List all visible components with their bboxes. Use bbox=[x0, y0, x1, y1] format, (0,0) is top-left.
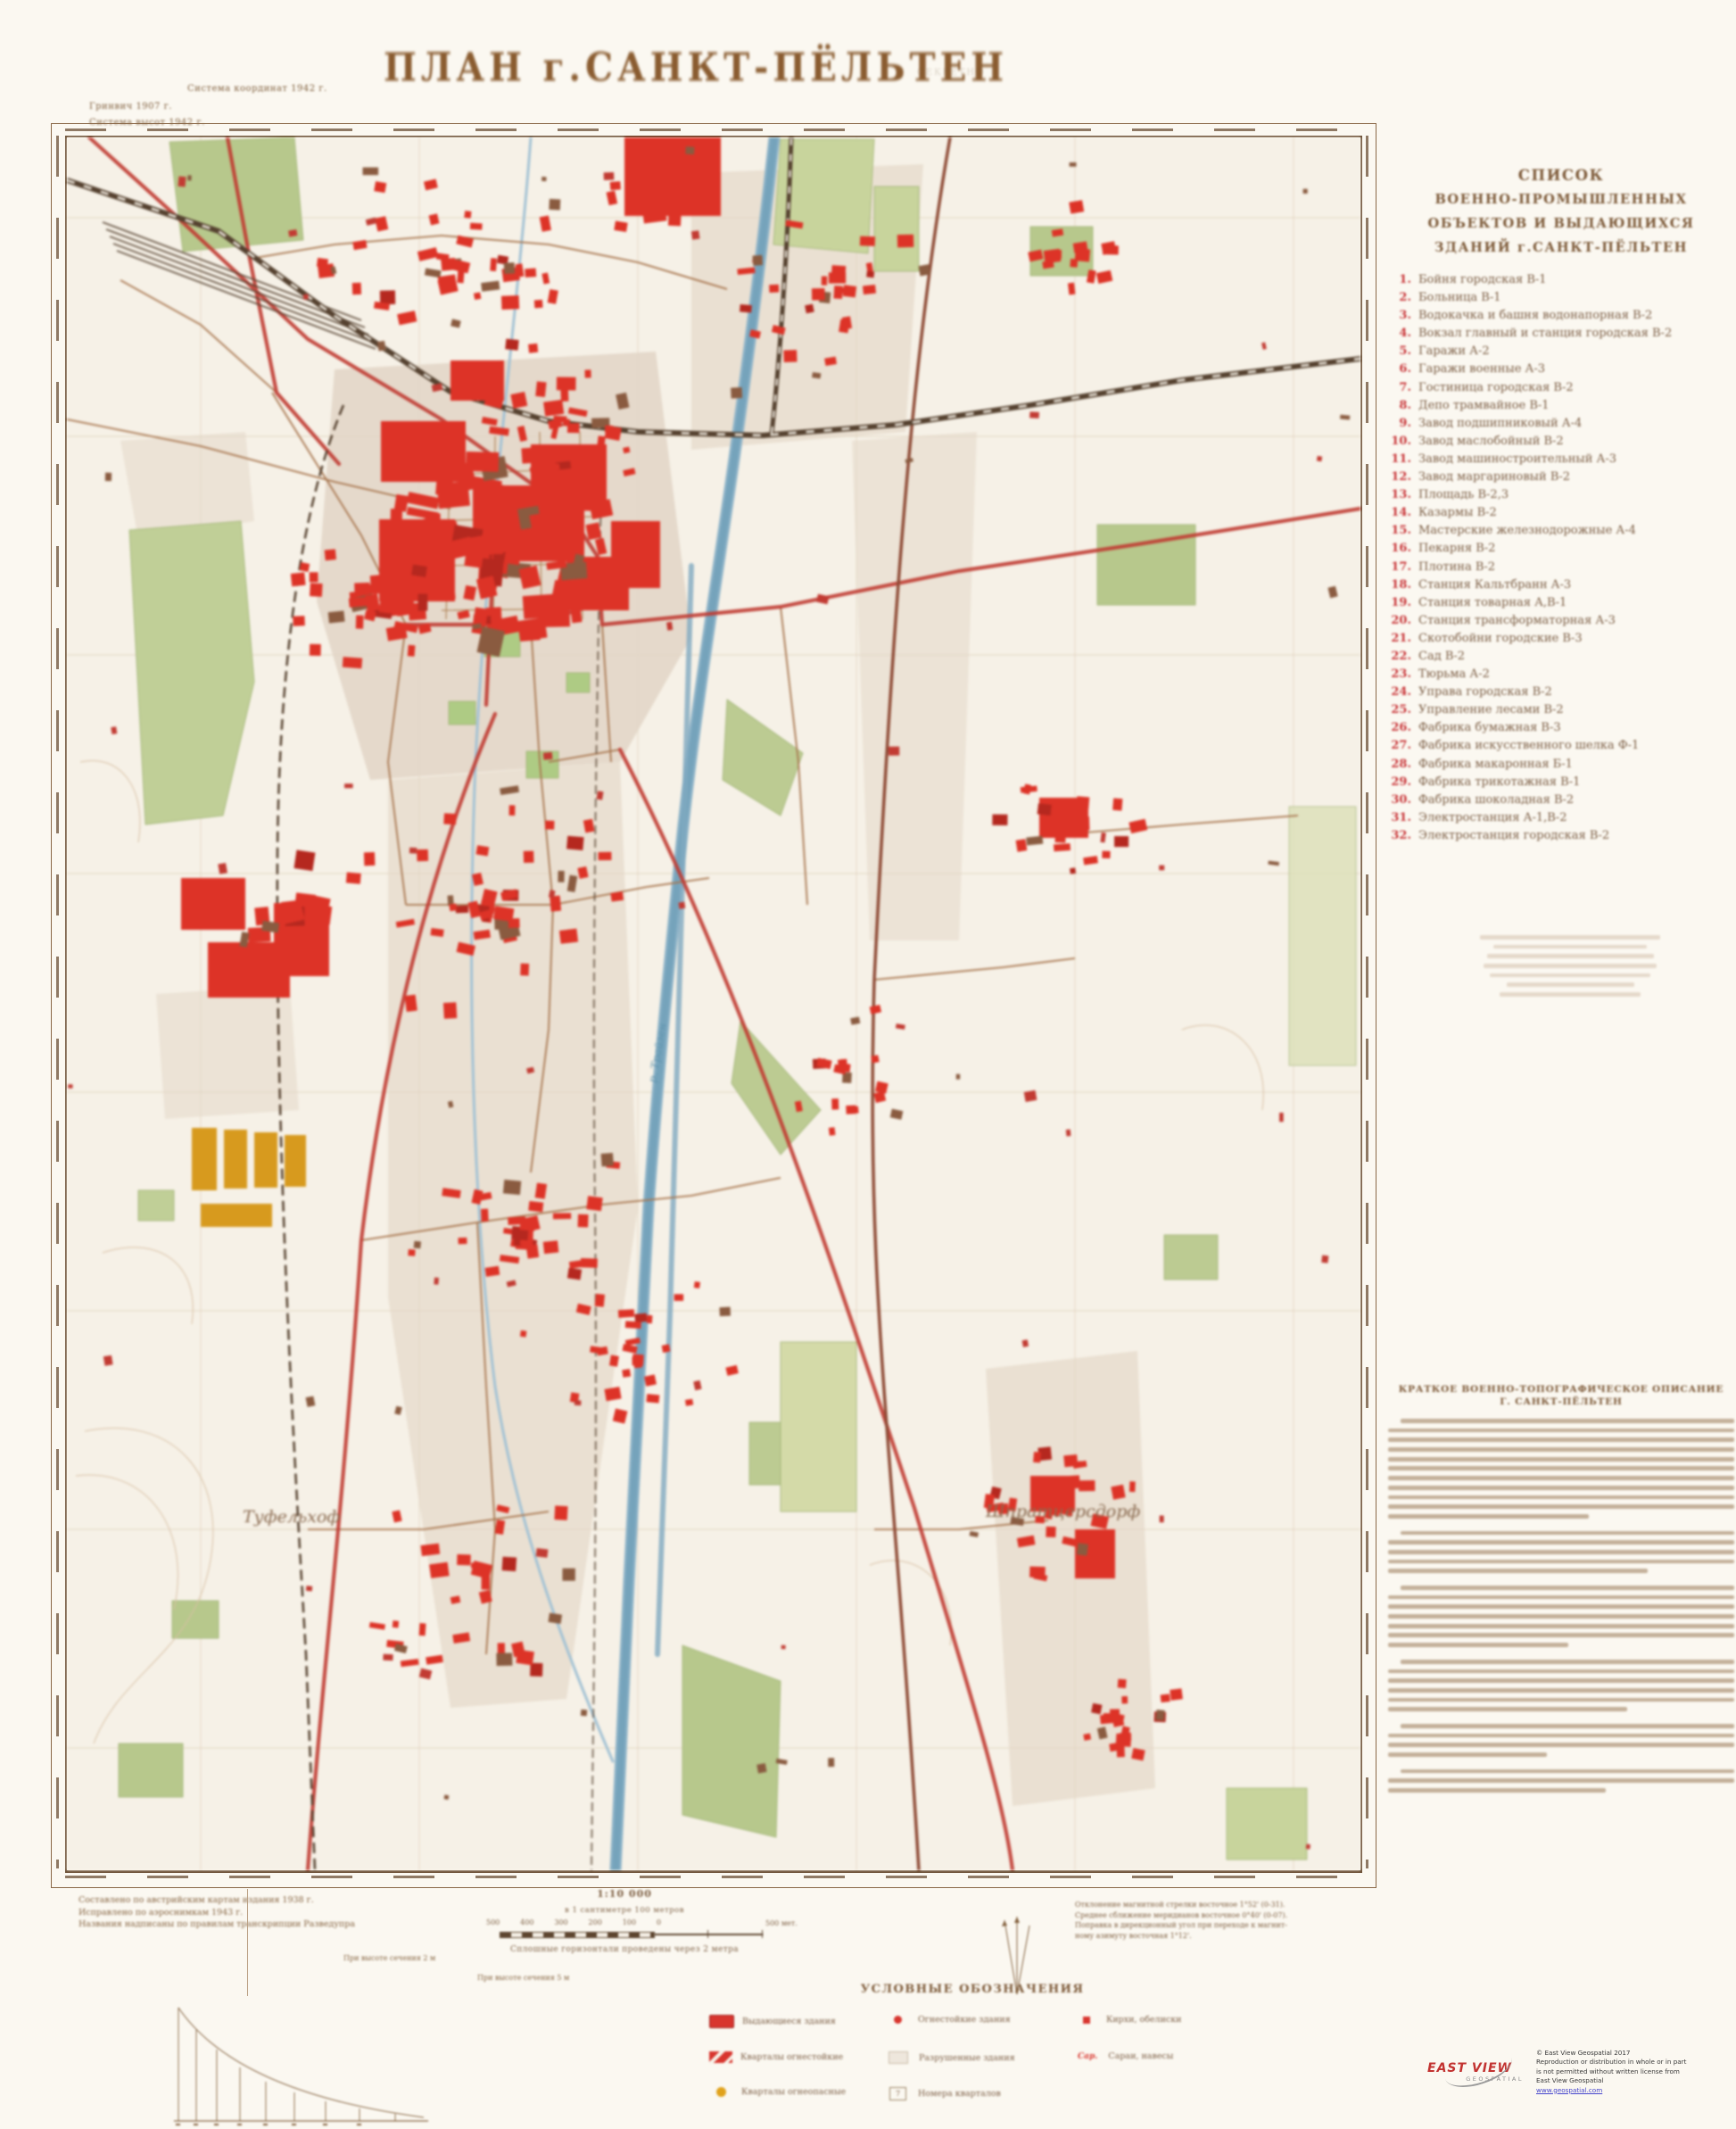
building-block bbox=[536, 1548, 549, 1558]
building-block bbox=[490, 258, 497, 271]
eastview-line: is not permitted without written license… bbox=[1536, 2067, 1686, 2076]
building-block bbox=[604, 172, 615, 180]
list-item-text: Бойня городская В-1 bbox=[1418, 271, 1547, 289]
building-block bbox=[812, 288, 825, 301]
source-note-line: Названия надписаны по правилам транскрип… bbox=[79, 1918, 355, 1931]
building-block bbox=[599, 852, 612, 860]
place-label: Туфельхоф bbox=[243, 1507, 340, 1527]
list-item-number: 23. bbox=[1388, 666, 1418, 683]
building-block bbox=[475, 845, 489, 856]
red-block-legend-icon bbox=[709, 2015, 734, 2028]
building-block bbox=[521, 447, 541, 464]
slope-scale-diagram bbox=[165, 1994, 433, 2128]
objects-list: СПИСОК ВОЕННО-ПРОМЫШЛЕННЫХ ОБЪЕКТОВ И ВЫ… bbox=[1388, 163, 1734, 845]
faint-text-line bbox=[1490, 973, 1650, 978]
building-block bbox=[541, 177, 547, 181]
scale-bar-numbers: 5004003002001000 bbox=[486, 1918, 661, 1926]
list-item: 29.Фабрика трикотажная В-1 bbox=[1388, 774, 1734, 791]
red-dot-legend-icon bbox=[894, 2016, 902, 2024]
list-item: 17.Плотина В-2 bbox=[1388, 559, 1734, 576]
list-item-number: 30. bbox=[1388, 791, 1418, 809]
building-block bbox=[566, 836, 584, 850]
list-item-text: Завод машиностроительный А-3 bbox=[1418, 451, 1616, 468]
building-block bbox=[889, 747, 899, 756]
building-block bbox=[352, 283, 361, 294]
building-block bbox=[504, 546, 522, 565]
building-block bbox=[563, 418, 571, 427]
description-text-line bbox=[1401, 1586, 1734, 1590]
building-block bbox=[1024, 1090, 1037, 1102]
building-block bbox=[409, 848, 417, 854]
building-block bbox=[419, 1623, 426, 1636]
list-item-number: 20. bbox=[1388, 612, 1418, 630]
building-block bbox=[822, 277, 828, 286]
list-item-number: 15. bbox=[1388, 522, 1418, 540]
building-block bbox=[549, 199, 560, 211]
building-block bbox=[310, 644, 321, 656]
building-block bbox=[1037, 803, 1052, 816]
list-item-number: 14. bbox=[1388, 504, 1418, 522]
legend-item: Кварталы огнеопасные bbox=[709, 2087, 846, 2097]
faint-text-line bbox=[1487, 954, 1654, 958]
legend-item: Сар.Сараи, навесы bbox=[1075, 2051, 1173, 2061]
building-block bbox=[641, 203, 666, 224]
frame-projection-line bbox=[247, 1889, 248, 1996]
building-block bbox=[528, 1201, 543, 1212]
scale-in-cm: в 1 сантиметре 100 метров bbox=[384, 1906, 865, 1915]
building-block bbox=[550, 896, 561, 912]
slope-note-b: При высоте сечения 5 м bbox=[477, 1974, 569, 1982]
list-heading-line: ЗДАНИЙ г.САНКТ-ПЁЛЬТЕН bbox=[1388, 236, 1734, 260]
description-text-line bbox=[1388, 1466, 1734, 1470]
list-item-text: Завод подшипниковый А-4 bbox=[1418, 415, 1582, 433]
building-block bbox=[1102, 851, 1110, 858]
legend-label: Огнестойкие здания bbox=[918, 2015, 1011, 2025]
legend-label: Кварталы огнестойкие bbox=[740, 2052, 843, 2062]
building-block bbox=[731, 387, 742, 399]
list-item-number: 28. bbox=[1388, 756, 1418, 774]
building-block bbox=[559, 929, 578, 944]
description-text-line bbox=[1388, 1457, 1734, 1462]
building-block bbox=[674, 1294, 683, 1301]
legend-label: Номера кварталов bbox=[918, 2089, 1001, 2099]
building-block bbox=[535, 1183, 547, 1199]
building-block bbox=[394, 494, 409, 512]
building-block bbox=[464, 211, 471, 219]
building-block bbox=[504, 262, 515, 274]
building-block bbox=[317, 258, 328, 268]
description-heading-line: КРАТКОЕ ВОЕННО-ТОПОГРАФИЧЕСКОЕ ОПИСАНИЕ bbox=[1388, 1383, 1734, 1396]
list-item-text: Завод маслобойный В-2 bbox=[1418, 433, 1564, 451]
building-block bbox=[310, 572, 318, 582]
list-item: 19.Станция товарная А,В-1 bbox=[1388, 594, 1734, 612]
list-item-number: 17. bbox=[1388, 559, 1418, 576]
building-block bbox=[1016, 839, 1028, 851]
building-block bbox=[543, 400, 564, 417]
building-block bbox=[548, 1612, 562, 1623]
legend-label: Выдающиеся здания bbox=[742, 2017, 836, 2026]
list-item-number: 2. bbox=[1388, 289, 1418, 307]
list-item-text: Плотина В-2 bbox=[1418, 559, 1495, 576]
list-item-text: Электростанция городская В-2 bbox=[1418, 827, 1609, 845]
list-item-number: 26. bbox=[1388, 719, 1418, 737]
building-block bbox=[1321, 1255, 1328, 1263]
building-block bbox=[1069, 200, 1084, 213]
list-item-text: Вокзал главный и станция городская В-2 bbox=[1418, 325, 1672, 343]
description-text-line bbox=[1388, 1476, 1734, 1480]
building-block bbox=[268, 949, 285, 957]
red-square-legend-icon bbox=[1083, 2017, 1090, 2024]
legend-label: Сараи, навесы bbox=[1108, 2051, 1173, 2061]
building-block bbox=[525, 268, 536, 277]
list-item: 24.Управа городская В-2 bbox=[1388, 683, 1734, 701]
building-block bbox=[1279, 1113, 1284, 1122]
frame-ticks-left bbox=[56, 136, 59, 1868]
faint-text-line bbox=[1493, 945, 1647, 949]
list-item-number: 22. bbox=[1388, 648, 1418, 666]
source-notes: Составлено по австрийским картам издания… bbox=[79, 1894, 355, 1931]
list-item-number: 32. bbox=[1388, 827, 1418, 845]
scale-number: 400 bbox=[520, 1918, 533, 1926]
scale-bar-line bbox=[654, 1934, 763, 1935]
building-block bbox=[584, 369, 591, 377]
building-block bbox=[496, 1653, 512, 1666]
eastview-line: Reproduction or distribution in whole or… bbox=[1536, 2058, 1686, 2067]
scale-ratio: 1:10 000 bbox=[384, 1888, 865, 1900]
description-text-line bbox=[1388, 1614, 1734, 1619]
building-block bbox=[1077, 1543, 1088, 1555]
description-text-line bbox=[1388, 1788, 1606, 1793]
list-item: 13.Площадь В-2,3 bbox=[1388, 486, 1734, 504]
description-text-line bbox=[1388, 1643, 1568, 1647]
building-block bbox=[449, 903, 457, 911]
list-item-number: 6. bbox=[1388, 360, 1418, 378]
building-block bbox=[370, 575, 381, 584]
faint-text-line bbox=[1480, 935, 1660, 940]
list-item: 12.Завод маргариновый В-2 bbox=[1388, 468, 1734, 486]
eastview-line: © East View Geospatial 2017 bbox=[1536, 2049, 1686, 2058]
description-text-line bbox=[1388, 1707, 1627, 1711]
building-block bbox=[501, 295, 519, 310]
list-item: 18.Станция Кальтбранн А-3 bbox=[1388, 576, 1734, 594]
building-block bbox=[1104, 1545, 1111, 1553]
building-block bbox=[1041, 817, 1054, 831]
building-block bbox=[457, 1554, 471, 1565]
list-item-number: 7. bbox=[1388, 379, 1418, 397]
list-item: 32.Электростанция городская В-2 bbox=[1388, 827, 1734, 845]
list-item: 3.Водокачка и башня водонапорная В-2 bbox=[1388, 307, 1734, 325]
building-block bbox=[992, 815, 1007, 825]
building-block bbox=[1340, 415, 1350, 420]
building-block bbox=[578, 1214, 589, 1228]
building-block bbox=[694, 1281, 700, 1288]
list-item-text: Сад В-2 bbox=[1418, 648, 1465, 666]
building-block bbox=[1062, 1475, 1079, 1489]
building-block bbox=[1054, 843, 1071, 851]
building-block bbox=[1111, 1485, 1125, 1500]
list-item-text: Фабрика макаронная Б-1 bbox=[1418, 756, 1573, 774]
building-block bbox=[719, 1307, 731, 1316]
building-block bbox=[1033, 1452, 1041, 1462]
building-block bbox=[434, 1278, 439, 1285]
building-block bbox=[897, 235, 914, 248]
list-item-text: Фабрика шоколадная В-2 bbox=[1418, 791, 1574, 809]
list-item-number: 16. bbox=[1388, 540, 1418, 558]
description-text-line bbox=[1388, 1514, 1589, 1519]
building-block bbox=[783, 350, 797, 362]
list-item-text: Больница В-1 bbox=[1418, 289, 1501, 307]
building-block bbox=[408, 645, 416, 657]
building-block bbox=[781, 1645, 786, 1650]
building-block bbox=[1155, 1710, 1164, 1720]
building-block bbox=[411, 565, 427, 577]
building-block bbox=[567, 1268, 582, 1280]
building-block bbox=[685, 146, 694, 154]
list-item: 8.Депо трамвайное В-1 bbox=[1388, 397, 1734, 415]
list-item-text: Казармы В-2 bbox=[1418, 504, 1497, 522]
paragraph-gap bbox=[1388, 1524, 1734, 1531]
list-item: 16.Пекарня В-2 bbox=[1388, 540, 1734, 558]
building-block bbox=[1161, 1694, 1170, 1702]
building-block bbox=[625, 1321, 641, 1329]
building-block bbox=[756, 1763, 766, 1774]
list-item-text: Управление лесами В-2 bbox=[1418, 701, 1564, 719]
eastview-text: © East View Geospatial 2017 Reproduction… bbox=[1536, 2049, 1686, 2095]
list-item: 11.Завод машиностроительный А-3 bbox=[1388, 451, 1734, 468]
description-text-line bbox=[1388, 1698, 1734, 1702]
building-block bbox=[691, 230, 700, 239]
building-block bbox=[1046, 1527, 1055, 1537]
building-block bbox=[519, 1220, 535, 1230]
building-block bbox=[325, 549, 336, 560]
description-text-line bbox=[1388, 1569, 1648, 1573]
legend-item: Кирхи, обелиски bbox=[1075, 2015, 1182, 2025]
building-block bbox=[829, 272, 846, 283]
list-item: 22.Сад В-2 bbox=[1388, 648, 1734, 666]
description-heading: КРАТКОЕ ВОЕННО-ТОПОГРАФИЧЕСКОЕ ОПИСАНИЕ … bbox=[1388, 1383, 1734, 1408]
abbr-legend-icon: Сар. bbox=[1078, 2052, 1097, 2061]
scale-end-label: 500 мет. bbox=[765, 1919, 798, 1927]
list-item: 5.Гаражи А-2 bbox=[1388, 343, 1734, 360]
faint-text-line bbox=[1484, 964, 1657, 968]
building-block bbox=[1112, 798, 1122, 810]
eastview-stamp: EAST VIEW GEOSPATIAL © East View Geospat… bbox=[1427, 2049, 1731, 2095]
building-block bbox=[364, 852, 376, 866]
frame-ticks-top bbox=[65, 128, 1359, 131]
frame-ticks-bottom bbox=[65, 1876, 1359, 1878]
building-block bbox=[1129, 1481, 1136, 1492]
faint-imprint-block bbox=[1472, 935, 1668, 1002]
building-block bbox=[464, 543, 484, 567]
description-text-line bbox=[1388, 1550, 1734, 1554]
description-block: КРАТКОЕ ВОЕННО-ТОПОГРАФИЧЕСКОЕ ОПИСАНИЕ … bbox=[1388, 1383, 1734, 1805]
building-block bbox=[833, 286, 842, 299]
eastview-logo: EAST VIEW GEOSPATIAL bbox=[1427, 2049, 1524, 2083]
scale-number: 100 bbox=[623, 1918, 636, 1926]
list-item-number: 11. bbox=[1388, 451, 1418, 468]
building-block bbox=[614, 221, 627, 233]
building-block bbox=[1056, 816, 1067, 827]
building-block bbox=[557, 377, 576, 390]
building-block bbox=[1073, 241, 1088, 253]
paragraph-gap bbox=[1388, 1578, 1734, 1586]
list-item-number: 12. bbox=[1388, 468, 1418, 486]
list-item-number: 31. bbox=[1388, 809, 1418, 827]
list-item-text: Электростанция А-1,В-2 bbox=[1418, 809, 1567, 827]
building-block bbox=[466, 451, 499, 472]
building-block bbox=[646, 1394, 659, 1403]
grey-rect-legend-icon bbox=[889, 2051, 908, 2064]
building-block bbox=[470, 223, 483, 230]
building-block bbox=[505, 339, 518, 351]
building-block bbox=[557, 542, 571, 555]
declination-line: Среднее сближение меридианов восточное 0… bbox=[1075, 1910, 1316, 1921]
building-block bbox=[306, 1586, 312, 1591]
description-text-line bbox=[1401, 1769, 1734, 1774]
building-block bbox=[1070, 259, 1078, 268]
list-item: 14.Казармы В-2 bbox=[1388, 504, 1734, 522]
list-item-number: 1. bbox=[1388, 271, 1418, 289]
city-map: ТуфельхофШпратцерсдорфр. Трайзен bbox=[67, 137, 1360, 1870]
building-block bbox=[543, 752, 553, 760]
description-text-line bbox=[1388, 1447, 1734, 1452]
description-text-line bbox=[1388, 1486, 1734, 1490]
building-block bbox=[481, 1209, 489, 1222]
building-block bbox=[595, 1294, 605, 1307]
building-block bbox=[846, 1106, 856, 1114]
building-block bbox=[1110, 1709, 1120, 1717]
place-label: Шпратцерсдорф bbox=[985, 1502, 1140, 1521]
description-text-line bbox=[1388, 1778, 1734, 1783]
building-block bbox=[344, 783, 353, 788]
building-block bbox=[393, 1620, 399, 1628]
faint-text-line bbox=[1500, 992, 1641, 997]
building-block bbox=[1120, 1732, 1131, 1741]
list-item: 9.Завод подшипниковый А-4 bbox=[1388, 415, 1734, 433]
building-block bbox=[1160, 1515, 1164, 1522]
list-item-text: Пекарня В-2 bbox=[1418, 540, 1495, 558]
building-block bbox=[444, 1794, 450, 1800]
building-block bbox=[293, 616, 305, 626]
building-block bbox=[634, 1313, 647, 1323]
scale-number: 300 bbox=[554, 1918, 567, 1926]
list-item: 7.Гостиница городская В-2 bbox=[1388, 379, 1734, 397]
list-item-text: Управа городская В-2 bbox=[1418, 683, 1552, 701]
list-item: 25.Управление лесами В-2 bbox=[1388, 701, 1734, 719]
list-item-text: Фабрика искусственного шелка Ф-1 bbox=[1418, 737, 1639, 755]
declination-line: Поправка в дирекционный угол при переход… bbox=[1075, 1920, 1316, 1931]
building-block bbox=[291, 572, 306, 586]
building-block bbox=[1114, 836, 1128, 847]
building-block bbox=[68, 1084, 72, 1089]
building-block bbox=[391, 509, 402, 528]
red-hatch-legend-icon bbox=[709, 2051, 732, 2063]
building-block bbox=[610, 181, 621, 190]
building-block bbox=[405, 995, 417, 1012]
description-text-line bbox=[1401, 1660, 1734, 1664]
building-block bbox=[685, 1399, 693, 1406]
building-block bbox=[534, 300, 543, 308]
legend-item: Кварталы огнестойкие bbox=[709, 2051, 843, 2063]
source-note-line: Составлено по австрийским картам издания… bbox=[79, 1894, 355, 1907]
building-block bbox=[417, 849, 428, 861]
paragraph-gap bbox=[1388, 1717, 1734, 1724]
contour-interval-note: Сплошные горизонтали проведены через 2 м… bbox=[384, 1945, 865, 1954]
list-item-number: 13. bbox=[1388, 486, 1418, 504]
building-block bbox=[443, 813, 456, 824]
building-block bbox=[1076, 796, 1089, 809]
building-block bbox=[586, 1196, 602, 1211]
building-block bbox=[426, 513, 441, 523]
building-block bbox=[310, 583, 323, 597]
building-block bbox=[545, 821, 555, 830]
building-block bbox=[1068, 283, 1075, 295]
building-block bbox=[178, 177, 186, 187]
building-block bbox=[543, 1240, 559, 1254]
building-block bbox=[1063, 1454, 1078, 1467]
eastview-link: www.geospatial.com bbox=[1536, 2086, 1686, 2095]
description-text-line bbox=[1388, 1504, 1734, 1509]
building-block bbox=[343, 657, 362, 668]
building-block bbox=[526, 1244, 540, 1258]
legend-label: Разрушенные здания bbox=[919, 2053, 1015, 2063]
list-item-text: Станция Кальтбранн А-3 bbox=[1418, 576, 1571, 594]
building-block bbox=[458, 1238, 467, 1245]
building-block bbox=[658, 137, 673, 150]
declination-text: Отклонение магнитной стрелки восточное 1… bbox=[1075, 1900, 1316, 1941]
list-item-number: 10. bbox=[1388, 433, 1418, 451]
building-block bbox=[609, 1354, 619, 1366]
building-block bbox=[363, 168, 379, 176]
list-item-text: Тюрьма А-2 bbox=[1418, 666, 1490, 683]
building-block bbox=[377, 341, 386, 352]
list-item: 2.Больница В-1 bbox=[1388, 289, 1734, 307]
building-block bbox=[605, 426, 622, 441]
list-item: 1.Бойня городская В-1 bbox=[1388, 271, 1734, 289]
list-item-text: Скотобойни городские В-3 bbox=[1418, 630, 1583, 648]
building-block bbox=[103, 1355, 113, 1366]
building-block bbox=[111, 726, 117, 734]
building-block bbox=[420, 1544, 440, 1556]
description-text-line bbox=[1401, 1419, 1734, 1423]
list-item-number: 5. bbox=[1388, 343, 1418, 360]
list-item-text: Депо трамвайное В-1 bbox=[1418, 397, 1550, 415]
description-text-line bbox=[1388, 1669, 1734, 1674]
list-item: 30.Фабрика шоколадная В-2 bbox=[1388, 791, 1734, 809]
building-block bbox=[1103, 245, 1119, 254]
list-item: 31.Электростанция А-1,В-2 bbox=[1388, 809, 1734, 827]
building-block bbox=[456, 906, 469, 914]
building-block bbox=[866, 271, 874, 278]
legend-heading: УСЛОВНЫЕ ОБОЗНАЧЕНИЯ bbox=[839, 1983, 1106, 1996]
description-text-line bbox=[1401, 1531, 1734, 1536]
building-block bbox=[622, 1369, 631, 1378]
building-block bbox=[303, 294, 309, 299]
description-text-line bbox=[1388, 1495, 1734, 1500]
scale-bar-tick bbox=[707, 1930, 708, 1938]
building-block bbox=[1029, 411, 1039, 418]
yellow-dot-legend-icon bbox=[716, 2087, 726, 2097]
building-block bbox=[553, 1213, 571, 1219]
building-block bbox=[568, 472, 582, 485]
building-block bbox=[105, 473, 112, 481]
scanned-map-sheet: { "header": { "notes_left": ["Система ко… bbox=[0, 0, 1736, 2129]
building-block bbox=[1317, 456, 1322, 461]
building-block bbox=[524, 851, 534, 863]
building-block bbox=[1022, 1339, 1029, 1347]
list-item-number: 27. bbox=[1388, 737, 1418, 755]
building-block bbox=[860, 236, 875, 246]
